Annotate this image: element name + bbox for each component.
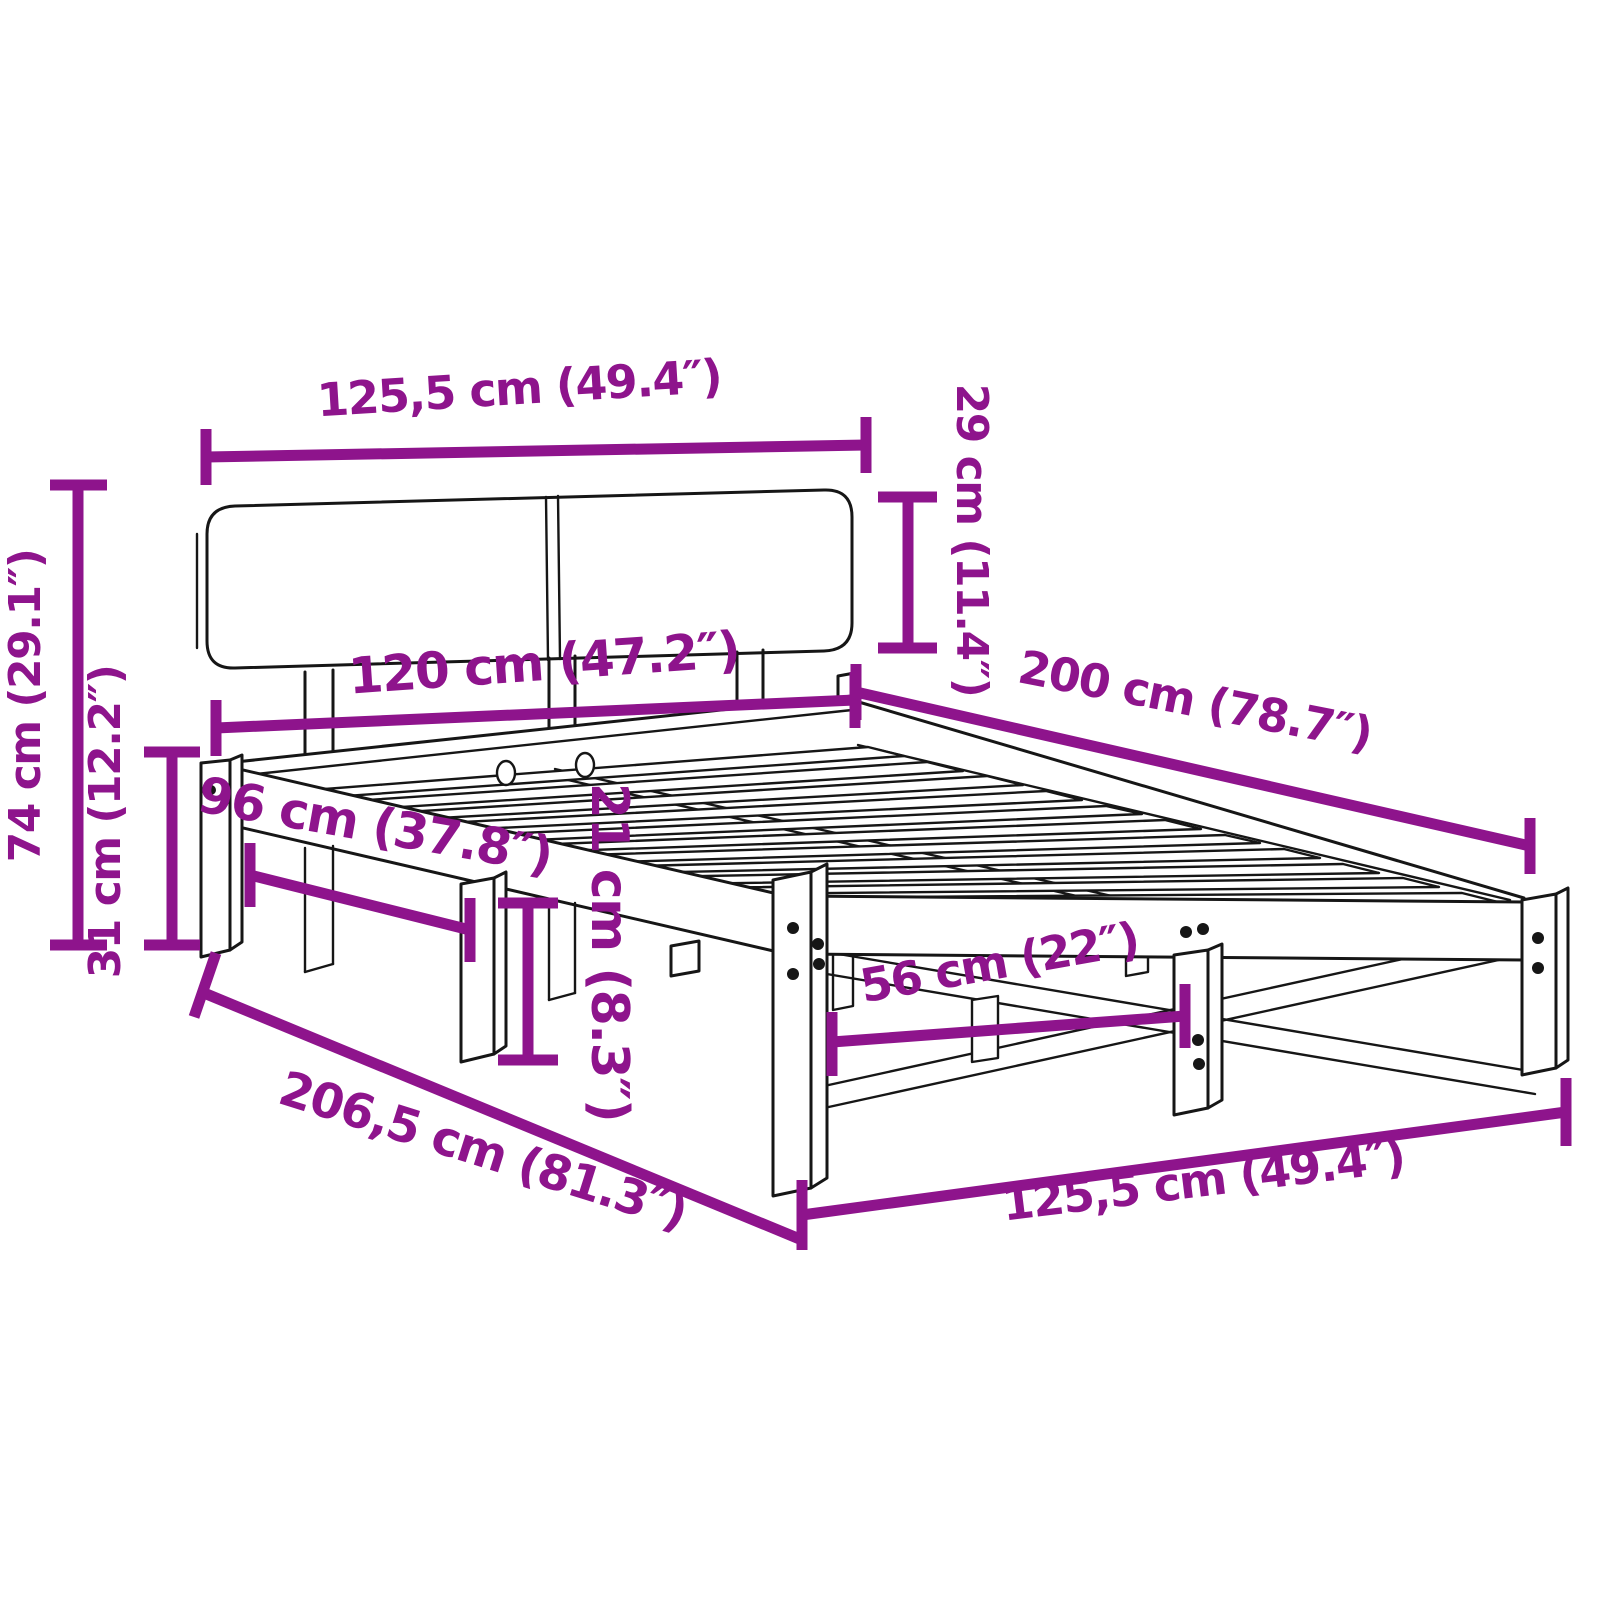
screw-icon bbox=[1192, 1034, 1204, 1046]
dim-base-width-label: 125,5 cm (49.4″) bbox=[999, 1129, 1407, 1232]
leg-foot-far bbox=[1522, 894, 1556, 1075]
diagram: 125,5 cm (49.4″) 29 cm (11.4″) 120 cm (4… bbox=[0, 0, 1600, 1600]
dim-headboard-width-label: 125,5 cm (49.4″) bbox=[315, 349, 722, 428]
screw-icon bbox=[812, 938, 824, 950]
post-bracket-hook bbox=[497, 761, 515, 785]
bed-dimension-diagram: 125,5 cm (49.4″) 29 cm (11.4″) 120 cm (4… bbox=[0, 0, 1600, 1600]
leg-foot-near-side bbox=[811, 864, 827, 1188]
screw-icon bbox=[787, 968, 799, 980]
dim-base-height-label: 31 cm (12.2″) bbox=[80, 666, 131, 979]
dim-headboard-height: 29 cm (11.4″) bbox=[878, 384, 997, 697]
screw-icon bbox=[1180, 926, 1192, 938]
post-left-lower bbox=[305, 964, 333, 972]
leg-foot-far-side bbox=[1556, 888, 1568, 1068]
dimension-line bbox=[832, 1016, 1185, 1042]
leg-center-support bbox=[671, 941, 699, 976]
dimension-line bbox=[206, 445, 866, 457]
dim-headboard-width: 125,5 cm (49.4″) bbox=[206, 349, 866, 485]
dimension-tick bbox=[194, 953, 216, 1017]
screw-icon bbox=[1532, 932, 1544, 944]
screw-icon bbox=[1193, 1058, 1205, 1070]
post-center-lower bbox=[549, 993, 575, 1000]
post-bracket-hook bbox=[576, 753, 594, 777]
screw-icon bbox=[1532, 962, 1544, 974]
foot-rail bbox=[795, 896, 1526, 960]
dim-clearance-height-label: 21 cm (8.3″) bbox=[579, 783, 639, 1121]
screw-icon bbox=[813, 958, 825, 970]
leg-foot-center-side bbox=[1208, 944, 1222, 1108]
screw-icon bbox=[1197, 923, 1209, 935]
leg-foot-near bbox=[773, 872, 811, 1196]
dimension-line bbox=[250, 875, 470, 930]
leg-foot-center bbox=[1174, 950, 1208, 1115]
dim-headboard-height-label: 29 cm (11.4″) bbox=[946, 384, 997, 697]
dim-total-height-label: 74 cm (29.1″) bbox=[0, 550, 51, 863]
dim-base-height: 31 cm (12.2″) bbox=[80, 666, 200, 979]
screw-icon bbox=[787, 922, 799, 934]
